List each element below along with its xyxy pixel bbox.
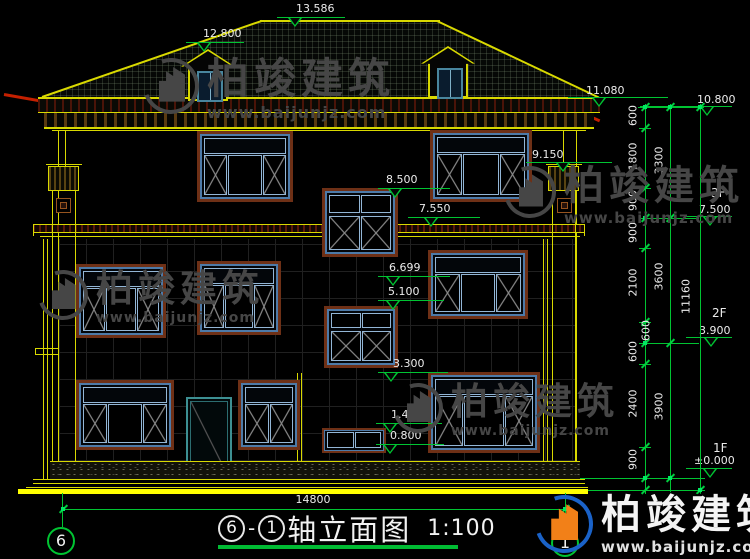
title-text: 轴立面图	[287, 507, 411, 549]
elevation-label: 11.080	[586, 85, 625, 97]
watermark-url: www.baijunjz.com	[451, 423, 619, 439]
window-1f-entry-side	[238, 380, 300, 450]
baijun-logo-icon	[393, 383, 443, 433]
elevation-label: 3.300	[393, 358, 425, 370]
floor-elevation: 3.900	[699, 325, 731, 337]
stair-window-mid	[324, 306, 398, 368]
elevation-drawing-canvas: 13.586 12.800 11.080 10.800 9.150 8.500 …	[0, 0, 750, 559]
title-axis-circle-1: 1	[258, 515, 285, 542]
watermark-brand: 柏竣建筑	[451, 383, 619, 420]
watermark-url: www.baijunjz.com	[207, 103, 395, 122]
watermark-brand: 柏竣建筑	[601, 495, 750, 535]
overall-width-dim: 14800	[280, 494, 346, 506]
elevation-label: 8.500	[386, 174, 418, 186]
elevation-label: 12.800	[203, 28, 242, 40]
elevation-label: 5.100	[388, 286, 420, 298]
baijun-logo-color-icon	[535, 495, 593, 553]
dim-label: 11160	[681, 265, 692, 329]
dim-label: 900	[628, 428, 639, 492]
dim-label: 600	[641, 299, 652, 363]
watermark-url: www.baijunjz.com	[96, 310, 264, 326]
elevation-label: 9.150	[532, 149, 564, 161]
window-1f-left	[76, 380, 174, 450]
watermark-right: 柏竣建筑 www.baijunjz.com	[504, 166, 744, 227]
watermark-top: 柏竣建筑 www.baijunjz.com	[143, 58, 395, 122]
window-3f-center	[197, 131, 293, 202]
dim-label: 2400	[628, 372, 639, 436]
title-separator: -	[248, 516, 255, 540]
baijun-logo-icon	[143, 58, 199, 114]
drawing-title: 6 - 1 轴立面图 1:100	[218, 511, 496, 545]
pilaster-left-ornament	[56, 198, 71, 213]
stair-window-landing	[322, 428, 386, 453]
elevation-label: 13.586	[296, 3, 335, 15]
title-underline	[218, 545, 458, 549]
stair-window-upper	[322, 188, 398, 257]
dormer-right-window	[437, 68, 463, 99]
watermark-url: www.baijunjz.com	[601, 538, 750, 556]
baijun-logo-icon	[38, 270, 88, 320]
pilaster-left-capital	[48, 166, 79, 191]
elevation-label: 7.550	[419, 203, 451, 215]
dim-label: 3600	[654, 245, 665, 309]
watermark-brand: 柏竣建筑	[207, 58, 395, 100]
title-axis-circle-6: 6	[218, 515, 245, 542]
watermark-bottom-right: 柏竣建筑 www.baijunjz.com	[535, 495, 750, 556]
watermark-brand: 柏竣建筑	[564, 166, 744, 206]
axis-bubble-6: 6	[47, 527, 75, 555]
watermark-left: 柏竣建筑 www.baijunjz.com	[38, 270, 264, 326]
watermark-center: 柏竣建筑 www.baijunjz.com	[393, 383, 619, 439]
plinth-stone-band	[50, 462, 580, 479]
title-scale: 1:100	[427, 516, 495, 541]
watermark-brand: 柏竣建筑	[96, 270, 264, 307]
elevation-label: 6.699	[389, 262, 421, 274]
window-2f-right	[428, 250, 528, 319]
floor-label: 2F	[712, 307, 727, 320]
dim-label: 3900	[654, 375, 665, 439]
watermark-url: www.baijunjz.com	[564, 209, 744, 227]
dormer-right	[421, 46, 475, 98]
baijun-logo-icon	[504, 166, 556, 218]
dim-label: 2100	[628, 251, 639, 315]
roof-ridge-line	[260, 20, 440, 22]
